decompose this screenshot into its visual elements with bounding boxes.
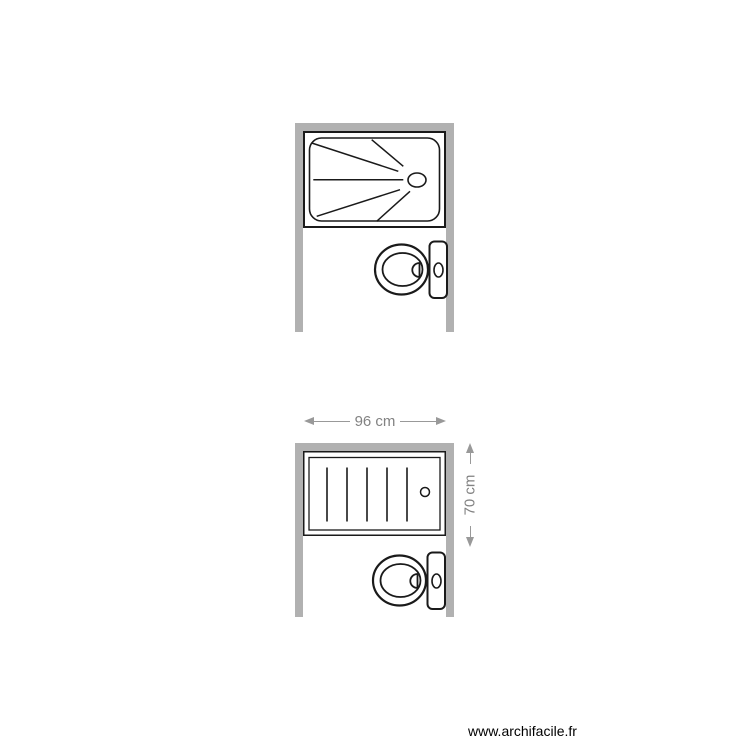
toilet-icon [368,549,448,613]
shower-tray[interactable] [303,131,446,228]
dimension-line [400,421,436,422]
watermark-url: www.archifacile.fr [468,723,577,739]
toilet[interactable] [370,238,450,302]
wall-left[interactable] [295,123,303,332]
shower-tray-icon [303,131,446,228]
arrow-left-icon [304,417,314,425]
wall-top[interactable] [295,123,454,131]
dimension-width[interactable]: 96 cm [304,410,446,432]
arrow-right-icon [436,417,446,425]
dimension-width-label: 96 cm [355,413,396,430]
floor-plan-top [295,123,454,332]
toilet-tank [430,242,448,299]
toilet-tank [428,553,446,610]
bathtub[interactable] [303,451,446,536]
dimension-height-label: 70 cm [462,464,478,526]
arrow-down-icon [466,537,474,547]
dimension-line [470,453,471,464]
bathtub-icon [303,451,446,536]
toilet-icon [370,238,450,302]
wall-left[interactable] [295,443,303,617]
wall-top[interactable] [295,443,454,451]
dimension-line [470,526,471,537]
toilet[interactable] [368,549,448,613]
floor-plan-bottom [295,443,454,617]
dimension-line [314,421,350,422]
dimension-height[interactable]: 70 cm [462,443,478,547]
arrow-up-icon [466,443,474,453]
